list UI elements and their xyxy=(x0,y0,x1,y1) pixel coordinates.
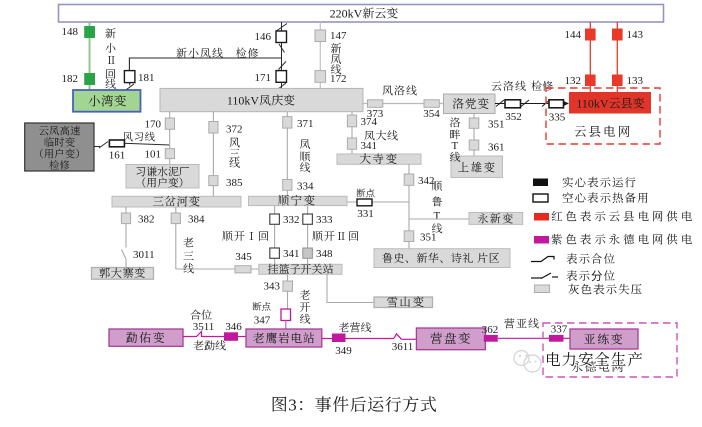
svg-text:老: 老 xyxy=(183,237,194,250)
svg-text:洛党变: 洛党变 xyxy=(452,97,490,111)
svg-text:检修: 检修 xyxy=(49,159,70,172)
svg-text:顺开Ⅰ回: 顺开Ⅰ回 xyxy=(222,230,270,243)
svg-text:检修: 检修 xyxy=(236,47,260,60)
svg-text:T: T xyxy=(452,140,459,152)
svg-text:352: 352 xyxy=(505,111,522,123)
svg-text:表示合位: 表示合位 xyxy=(566,253,616,266)
svg-text:351: 351 xyxy=(488,119,505,131)
svg-text:3511: 3511 xyxy=(193,321,215,333)
svg-text:云洛线: 云洛线 xyxy=(491,80,527,93)
svg-text:148: 148 xyxy=(62,26,79,38)
svg-text:101: 101 xyxy=(145,149,162,161)
svg-text:（用户变）: （用户变） xyxy=(33,149,86,161)
svg-text:营盘变: 营盘变 xyxy=(430,332,472,346)
svg-text:345: 345 xyxy=(235,251,252,263)
svg-text:开: 开 xyxy=(300,301,311,314)
svg-text:鲁史、新华、诗礼 片区: 鲁史、新华、诗礼 片区 xyxy=(382,252,500,265)
svg-text:老鹰岩电站: 老鹰岩电站 xyxy=(253,332,316,346)
svg-text:Ⅱ: Ⅱ xyxy=(106,55,117,67)
svg-text:勐佑变: 勐佑变 xyxy=(126,331,167,345)
svg-text:（用户变）: （用户变） xyxy=(136,177,190,190)
svg-text:171: 171 xyxy=(255,72,272,84)
svg-text:图3：事件后运行方式: 图3：事件后运行方式 xyxy=(271,396,438,415)
svg-text:线: 线 xyxy=(300,313,311,326)
svg-text:断点: 断点 xyxy=(252,301,272,313)
svg-text:351: 351 xyxy=(420,232,437,244)
svg-text:红色表示云县电网供电: 红色表示云县电网供电 xyxy=(551,211,695,224)
svg-text:老勐线: 老勐线 xyxy=(193,340,226,353)
svg-text:333: 333 xyxy=(316,214,333,226)
svg-text:3011: 3011 xyxy=(133,249,155,261)
svg-text:382: 382 xyxy=(138,214,155,226)
svg-text:临时变: 临时变 xyxy=(44,136,76,149)
svg-text:337: 337 xyxy=(551,324,568,336)
svg-text:三岔河变: 三岔河变 xyxy=(153,196,201,209)
svg-text:表示分位: 表示分位 xyxy=(566,270,616,283)
svg-text:133: 133 xyxy=(627,75,644,87)
svg-text:线: 线 xyxy=(300,162,311,175)
svg-text:风习线: 风习线 xyxy=(123,132,156,144)
svg-text:电力安全生产: 电力安全生产 xyxy=(545,351,644,369)
svg-text:146: 146 xyxy=(255,31,272,43)
svg-text:110kV凤庆变: 110kV凤庆变 xyxy=(227,93,295,107)
svg-text:384: 384 xyxy=(188,214,205,226)
svg-text:334: 334 xyxy=(297,181,314,193)
svg-text:348: 348 xyxy=(316,248,333,260)
svg-text:347: 347 xyxy=(254,315,271,327)
svg-text:鲁: 鲁 xyxy=(432,196,443,209)
svg-text:341: 341 xyxy=(361,140,378,152)
svg-text:335: 335 xyxy=(549,112,566,124)
svg-text:349: 349 xyxy=(335,345,352,357)
svg-text:老: 老 xyxy=(300,289,311,302)
svg-text:147: 147 xyxy=(330,30,347,42)
svg-text:上雄变: 上雄变 xyxy=(458,162,497,175)
svg-text:181: 181 xyxy=(138,72,155,84)
svg-text:385: 385 xyxy=(226,177,243,189)
svg-text:161: 161 xyxy=(109,150,126,162)
svg-text:紫色表示永德电网供电: 紫色表示永德电网供电 xyxy=(551,234,695,247)
svg-text:检修: 检修 xyxy=(531,80,554,93)
svg-text:云县电网: 云县电网 xyxy=(574,125,632,139)
svg-text:老营线: 老营线 xyxy=(339,322,372,335)
svg-text:洛: 洛 xyxy=(450,117,461,130)
svg-text:372: 372 xyxy=(226,124,243,136)
svg-text:大寺变: 大寺变 xyxy=(360,153,399,166)
svg-text:小湾变: 小湾变 xyxy=(88,95,127,109)
svg-text:新小凤线: 新小凤线 xyxy=(176,47,224,60)
svg-text:343: 343 xyxy=(264,281,281,293)
svg-text:182: 182 xyxy=(62,73,79,85)
svg-text:3611: 3611 xyxy=(392,341,414,353)
svg-text:144: 144 xyxy=(565,29,582,41)
svg-text:346: 346 xyxy=(225,321,242,333)
svg-text:断点: 断点 xyxy=(356,188,376,200)
svg-text:实心表示运行: 实心表示运行 xyxy=(562,177,637,190)
svg-text:风洛线: 风洛线 xyxy=(382,85,418,98)
svg-text:小: 小 xyxy=(105,42,116,55)
svg-text:332: 332 xyxy=(283,214,300,226)
svg-text:371: 371 xyxy=(297,118,314,130)
svg-text:374: 374 xyxy=(361,116,378,128)
svg-text:灰色表示失压: 灰色表示失压 xyxy=(568,284,643,297)
svg-text:143: 143 xyxy=(627,29,644,41)
svg-text:亚练变: 亚练变 xyxy=(584,333,625,347)
svg-text:空心表示热备用: 空心表示热备用 xyxy=(562,192,650,205)
svg-text:线: 线 xyxy=(331,64,342,77)
svg-text:雪山变: 雪山变 xyxy=(387,296,426,309)
svg-text:永新变: 永新变 xyxy=(477,213,515,226)
svg-text:354: 354 xyxy=(423,108,440,120)
svg-text:三: 三 xyxy=(183,251,194,263)
svg-text:郭大寨变: 郭大寨变 xyxy=(99,267,146,280)
svg-text:110kV云县变: 110kV云县变 xyxy=(576,97,644,111)
svg-text:362: 362 xyxy=(482,324,499,336)
svg-text:331: 331 xyxy=(357,208,374,220)
svg-text:凤: 凤 xyxy=(300,139,311,151)
svg-text:T: T xyxy=(434,210,441,222)
svg-text:341: 341 xyxy=(283,248,300,260)
svg-text:361: 361 xyxy=(488,142,505,154)
svg-text:顺开Ⅱ回: 顺开Ⅱ回 xyxy=(312,230,360,243)
svg-text:挂篮子开关站: 挂篮子开关站 xyxy=(268,263,334,276)
svg-text:营亚线: 营亚线 xyxy=(504,318,540,331)
svg-text:顺: 顺 xyxy=(432,180,443,193)
svg-text:云凤高速: 云凤高速 xyxy=(39,126,81,138)
svg-text:220kV新云变: 220kV新云变 xyxy=(330,7,399,21)
svg-text:线: 线 xyxy=(105,78,116,91)
svg-text:新: 新 xyxy=(105,28,117,41)
svg-text:132: 132 xyxy=(565,75,582,87)
svg-text:线: 线 xyxy=(450,151,461,164)
svg-text:170: 170 xyxy=(145,119,162,131)
svg-text:顺宁变: 顺宁变 xyxy=(278,195,317,208)
svg-text:线: 线 xyxy=(229,157,240,170)
